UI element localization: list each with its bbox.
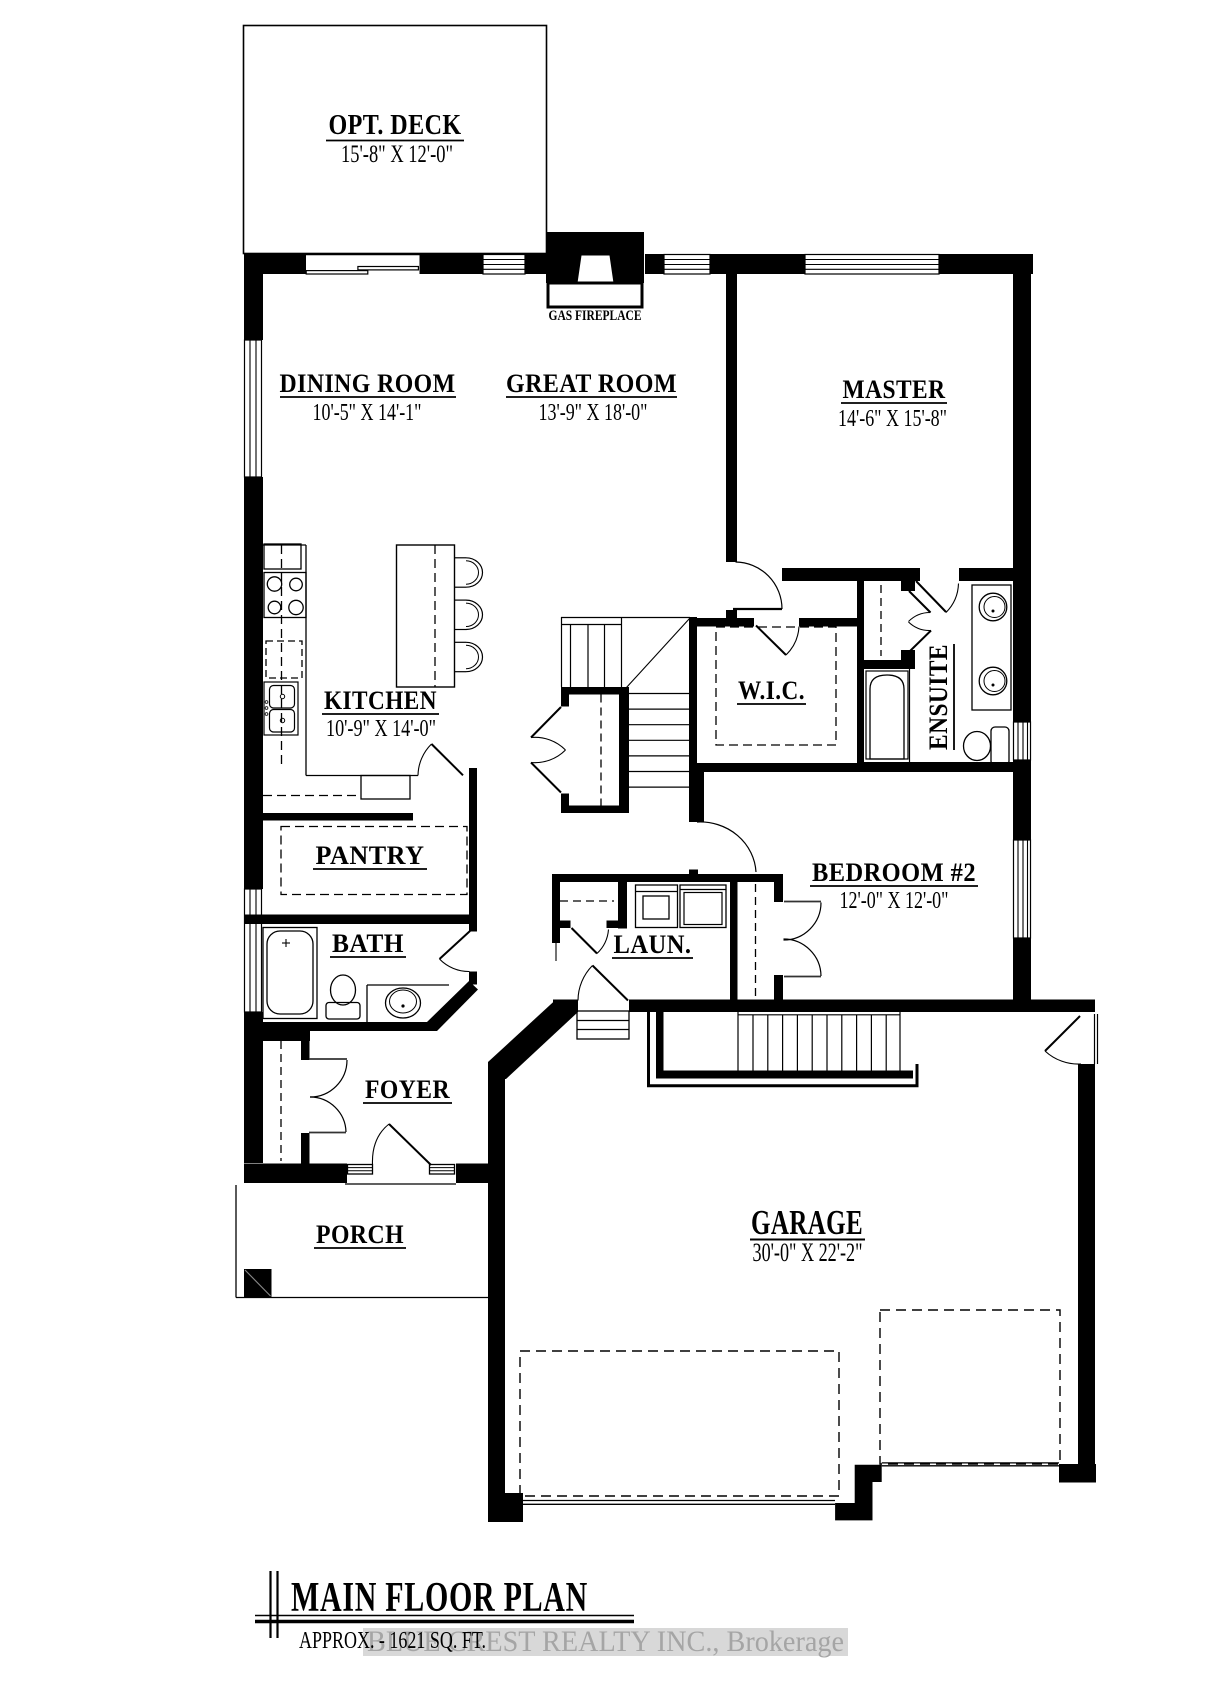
svg-text:DINING ROOM: DINING ROOM — [280, 369, 456, 398]
svg-text:13'-9" X 18'-0": 13'-9" X 18'-0" — [539, 400, 648, 426]
svg-text:15'-8" X 12'-0": 15'-8" X 12'-0" — [341, 141, 453, 168]
svg-text:MAIN FLOOR PLAN: MAIN FLOOR PLAN — [291, 1575, 588, 1621]
svg-text:BATH: BATH — [332, 929, 404, 958]
svg-text:GARAGE: GARAGE — [751, 1203, 863, 1242]
svg-text:10'-9" X 14'-0": 10'-9" X 14'-0" — [326, 716, 436, 742]
svg-text:PORCH: PORCH — [316, 1220, 404, 1249]
svg-text:APPROX. - 1621 SQ. FT.: APPROX. - 1621 SQ. FT. — [299, 1628, 486, 1654]
svg-text:KITCHEN: KITCHEN — [324, 686, 437, 715]
svg-text:GAS FIREPLACE: GAS FIREPLACE — [549, 308, 642, 324]
svg-text:OPT. DECK: OPT. DECK — [329, 109, 462, 141]
svg-text:FOYER: FOYER — [365, 1075, 450, 1104]
svg-text:GREAT ROOM: GREAT ROOM — [506, 369, 677, 398]
svg-text:LAUN.: LAUN. — [614, 930, 692, 959]
svg-text:ENSUITE: ENSUITE — [924, 644, 953, 750]
svg-text:BEDROOM #2: BEDROOM #2 — [812, 858, 976, 887]
svg-text:30'-0" X 22'-2": 30'-0" X 22'-2" — [753, 1238, 863, 1267]
svg-text:10'-5" X 14'-1": 10'-5" X 14'-1" — [313, 400, 422, 426]
svg-text:W.I.C.: W.I.C. — [738, 676, 805, 705]
svg-text:PANTRY: PANTRY — [316, 841, 425, 870]
svg-text:14'-6" X 15'-8": 14'-6" X 15'-8" — [838, 406, 947, 432]
svg-text:MASTER: MASTER — [843, 375, 946, 404]
svg-text:12'-0" X 12'-0": 12'-0" X 12'-0" — [840, 888, 949, 914]
